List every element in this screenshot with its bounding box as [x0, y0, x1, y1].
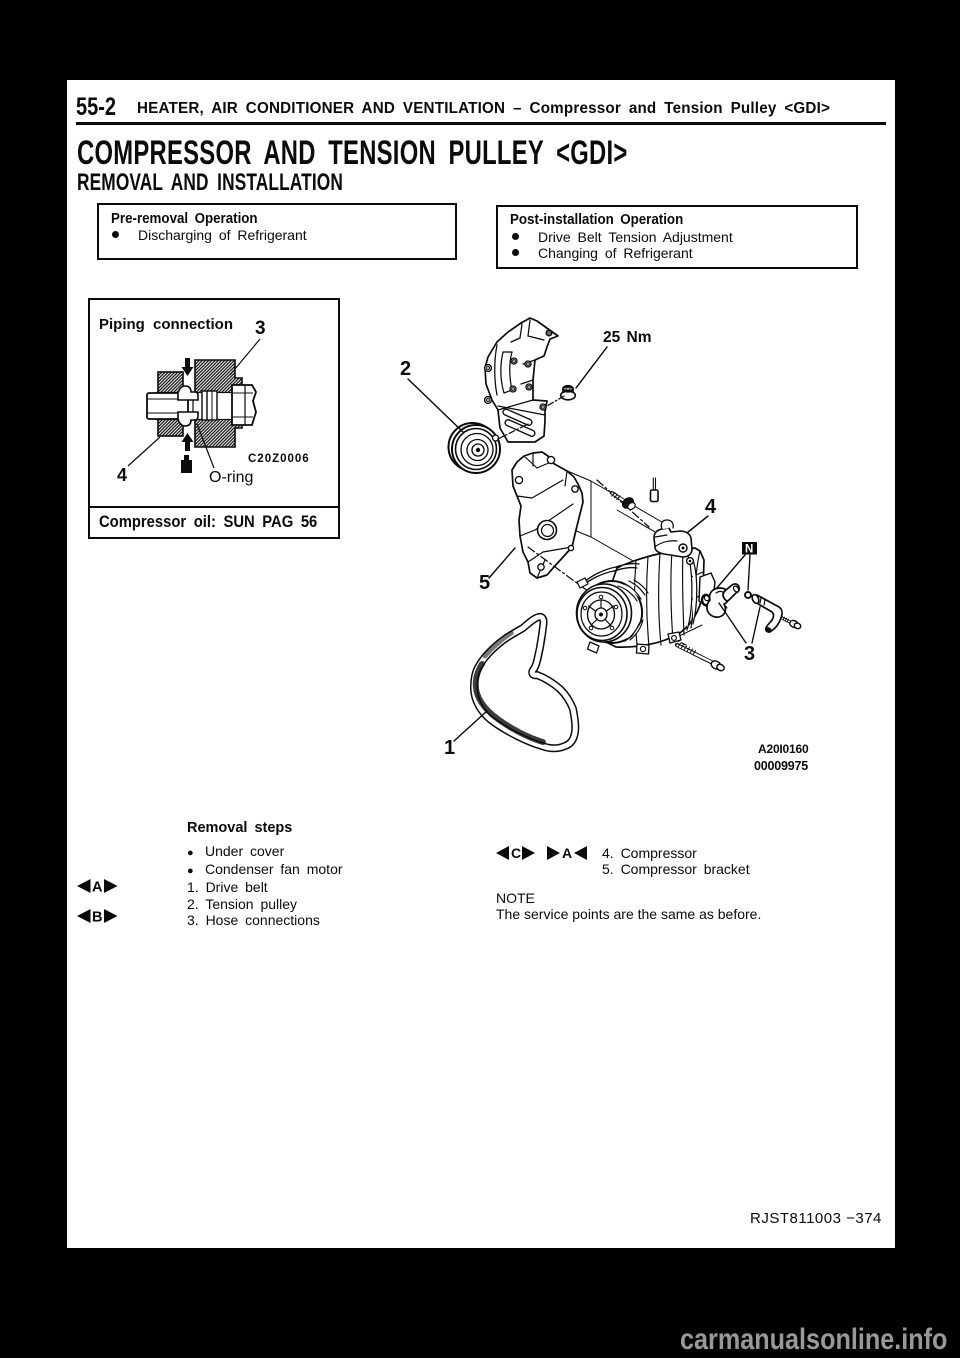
svg-text:C20Z0006: C20Z0006	[248, 453, 310, 465]
svg-text:B: B	[92, 910, 102, 924]
svg-text:1: 1	[444, 737, 455, 759]
svg-text:4: 4	[705, 496, 717, 518]
svg-text:A: A	[92, 880, 103, 894]
svg-text:5: 5	[479, 572, 490, 594]
svg-text:C: C	[511, 846, 521, 860]
svg-text:3: 3	[744, 643, 755, 665]
svg-text:A20I0160: A20I0160	[758, 742, 809, 756]
svg-text:25 Nm: 25 Nm	[603, 329, 652, 346]
svg-text:O-ring: O-ring	[209, 469, 253, 486]
svg-text:A: A	[562, 846, 572, 860]
svg-text:N: N	[745, 544, 753, 556]
svg-text:2: 2	[400, 358, 411, 380]
svg-text:4: 4	[117, 465, 127, 485]
svg-text:00009975: 00009975	[754, 759, 808, 773]
svg-text:3: 3	[255, 318, 266, 339]
